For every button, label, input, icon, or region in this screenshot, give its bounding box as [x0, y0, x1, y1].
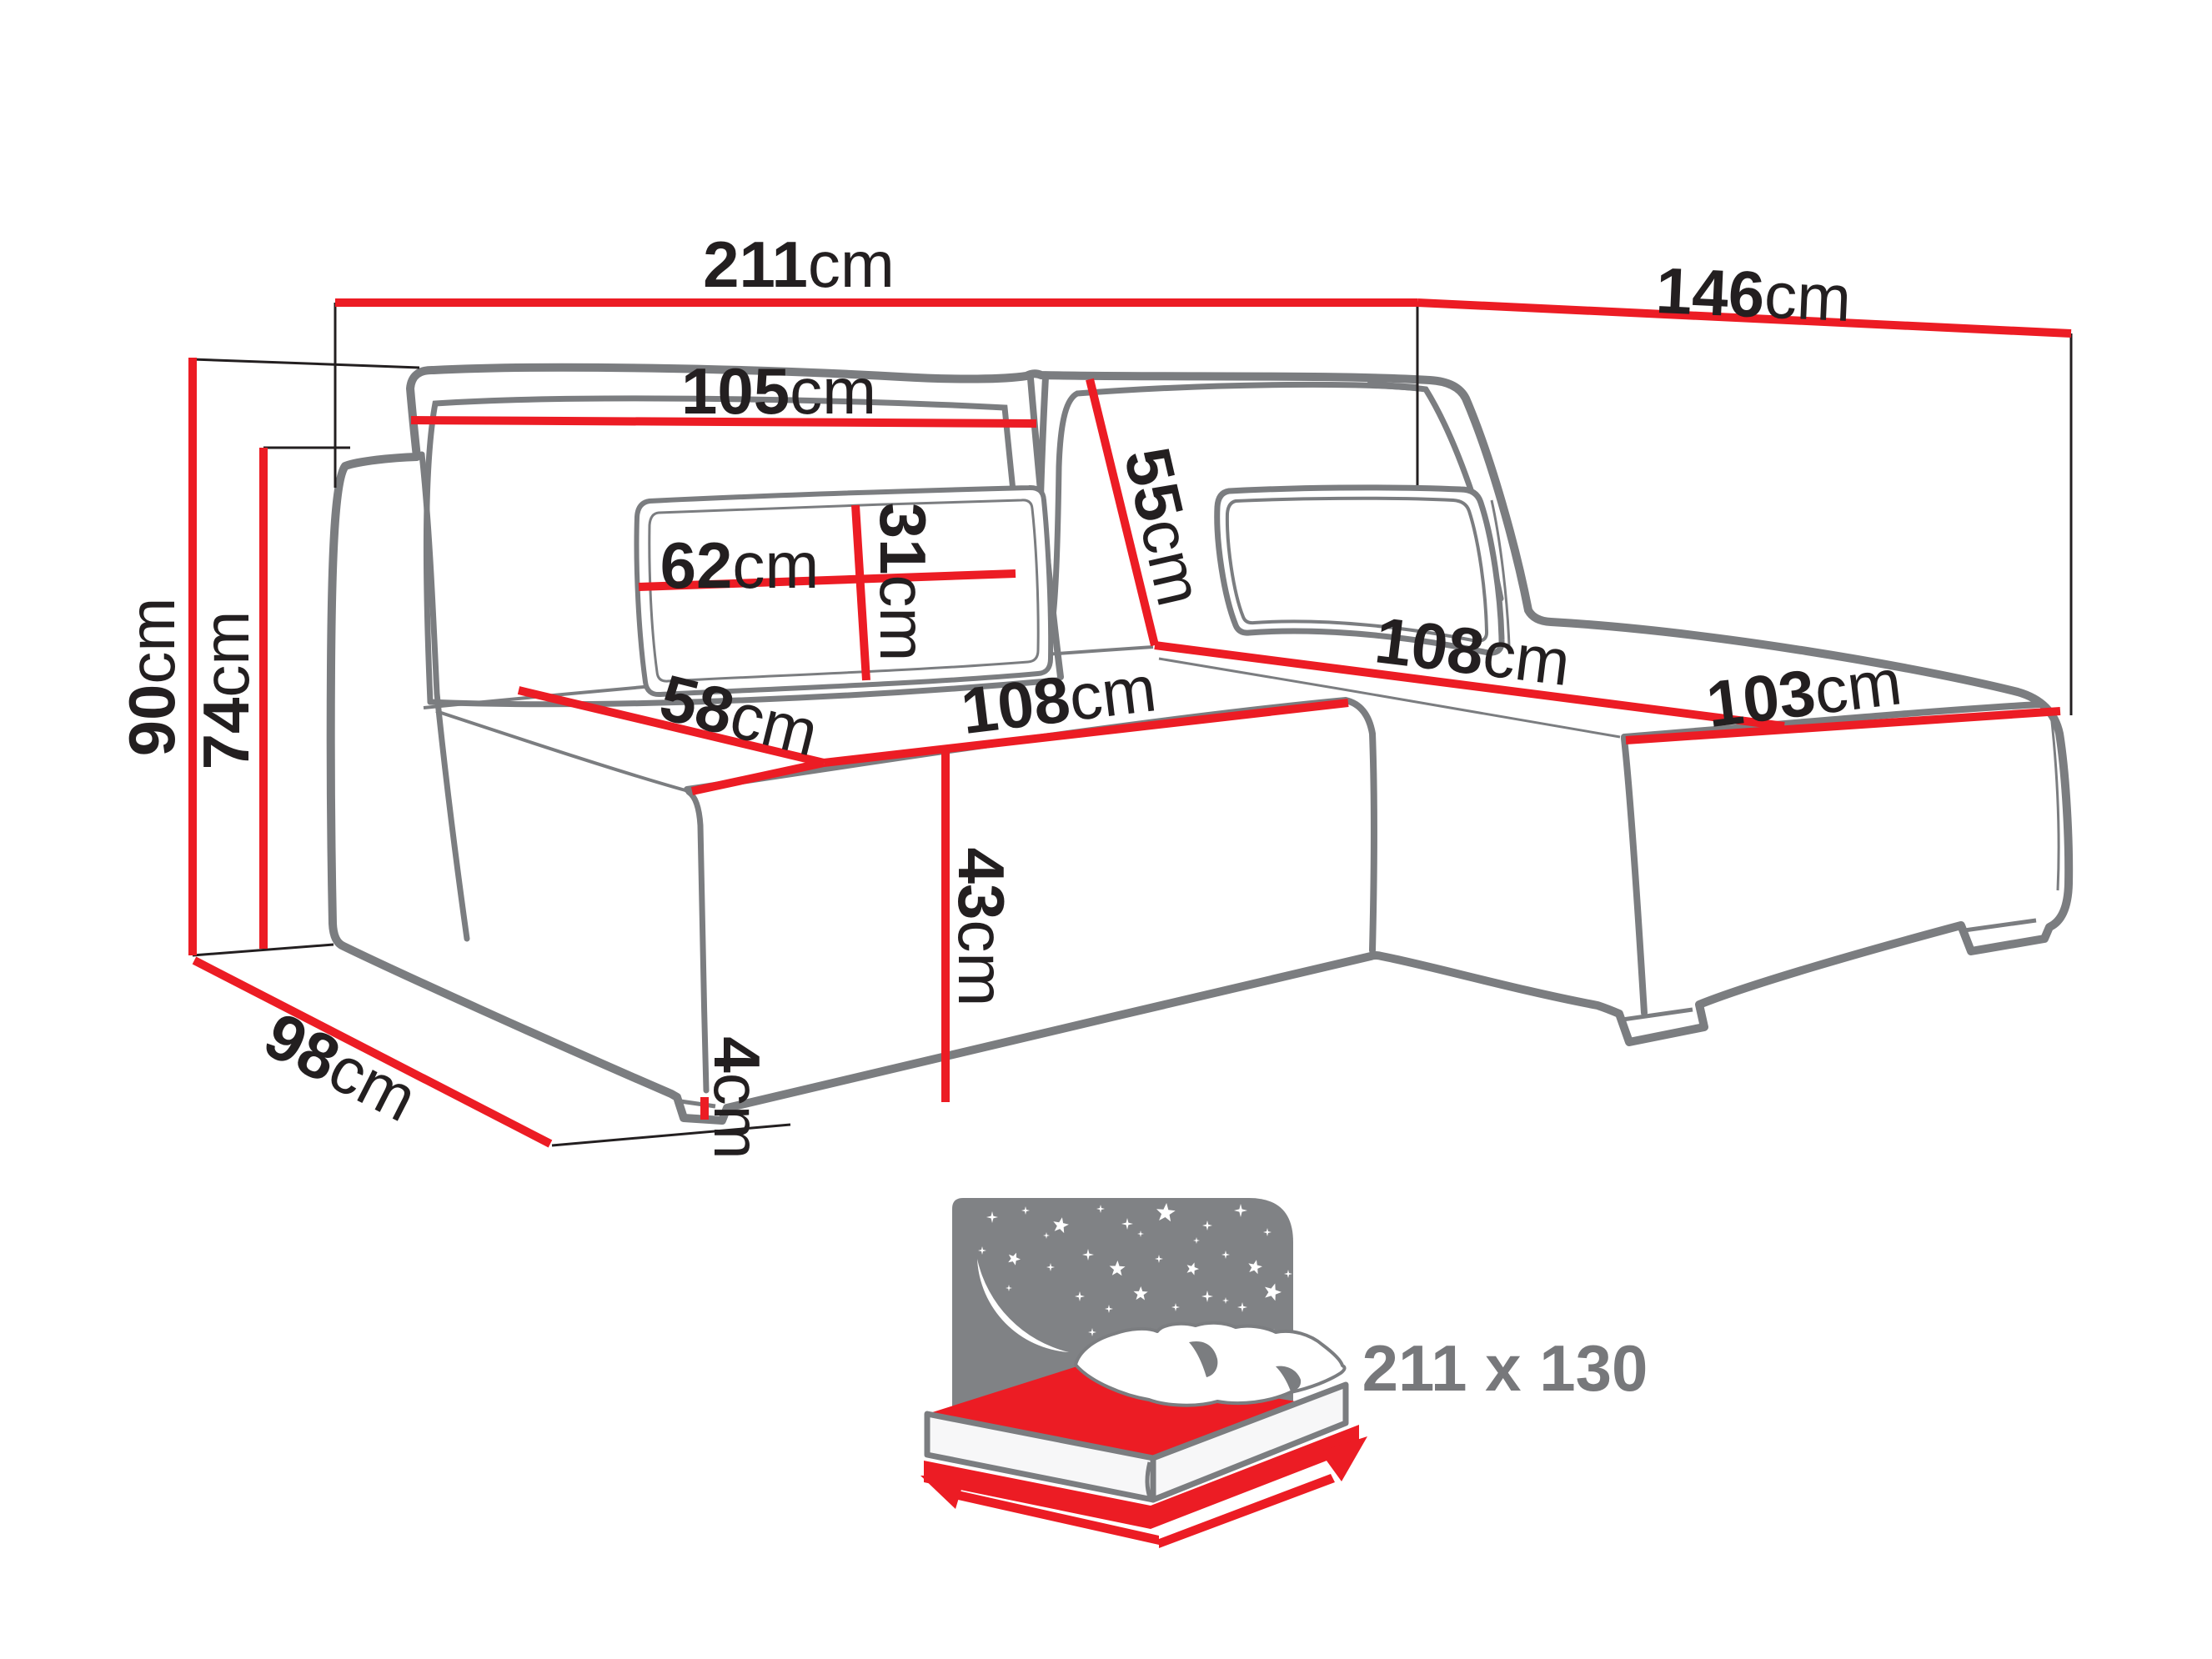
svg-text:211 x 130: 211 x 130 — [1362, 1331, 1648, 1405]
svg-text:211cm: 211cm — [703, 228, 895, 301]
svg-text:105cm: 105cm — [681, 354, 876, 428]
svg-text:90cm: 90cm — [115, 598, 188, 757]
svg-text:146cm: 146cm — [1654, 253, 1853, 335]
svg-text:43cm: 43cm — [945, 848, 1018, 1007]
svg-text:74cm: 74cm — [189, 611, 263, 770]
svg-text:62cm: 62cm — [660, 529, 820, 602]
svg-text:31cm: 31cm — [866, 503, 940, 662]
svg-text:4cm: 4cm — [700, 1036, 774, 1159]
